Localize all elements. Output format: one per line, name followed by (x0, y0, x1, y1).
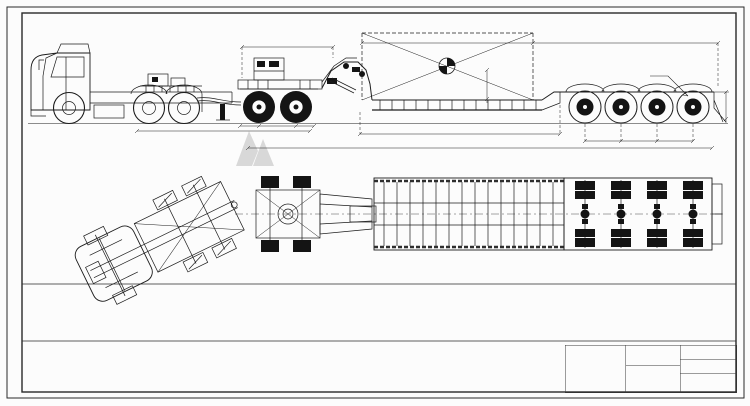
scale-table (626, 366, 680, 393)
revision-table (566, 346, 626, 393)
company-name (681, 346, 737, 361)
title-block (565, 345, 736, 392)
dimension-lines (135, 41, 729, 150)
revision-grid (566, 346, 627, 393)
plan-view (67, 168, 726, 314)
left-revision-strip (22, 283, 42, 392)
drawing-title (681, 360, 737, 374)
drawing-sheet (0, 0, 750, 406)
trailer-side (372, 84, 726, 123)
tractor-side (31, 44, 232, 124)
sheet-border (7, 7, 744, 398)
mountain-logo (236, 131, 274, 166)
tractor-plan (67, 168, 254, 314)
watermark (236, 131, 274, 166)
dolly-gooseneck-side (197, 58, 372, 123)
drawing-type (626, 346, 680, 367)
side-view (28, 33, 729, 150)
scale-grid (626, 366, 680, 393)
drawing-date (681, 374, 737, 393)
